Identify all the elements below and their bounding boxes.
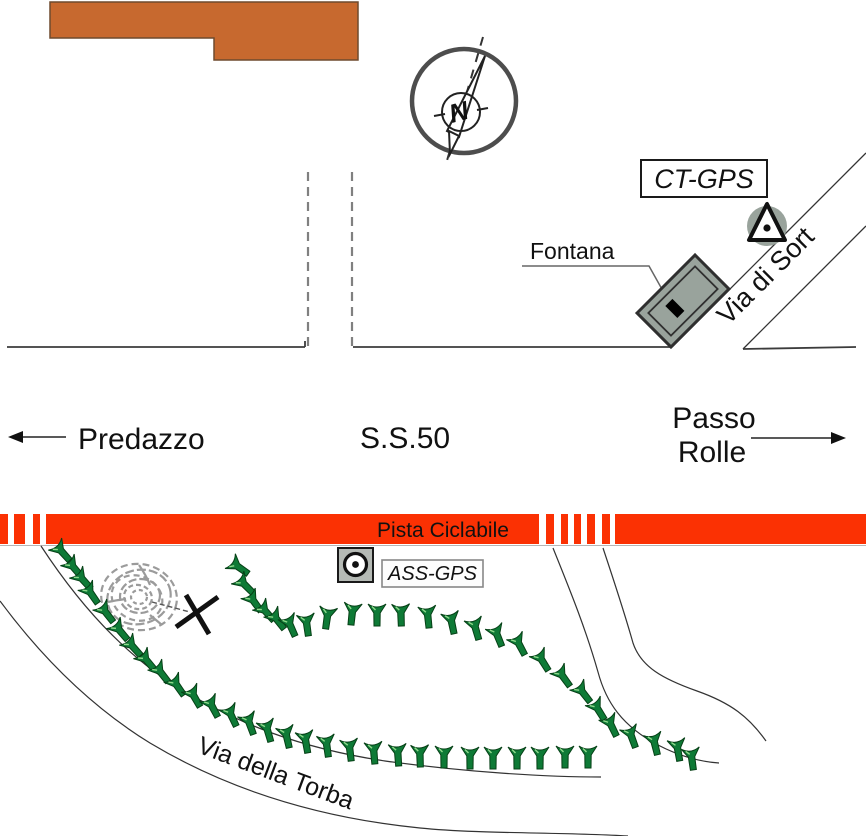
tree-marker <box>667 738 689 763</box>
sketch-map: N Via di Sort Fontana CT-GPS Preda <box>0 0 866 836</box>
tree-marker <box>643 731 666 757</box>
band-white-stripe <box>539 514 546 544</box>
band-white-stripe <box>8 514 14 544</box>
bike-path-label: Pista Ciclabile <box>377 519 509 542</box>
tree-marker <box>219 702 245 730</box>
west-direction: Predazzo <box>8 423 205 456</box>
tree-marker <box>619 724 643 751</box>
tree-marker <box>368 604 386 626</box>
mound-ring <box>119 577 162 614</box>
building-footprint <box>50 2 358 60</box>
tree-marker <box>317 606 338 630</box>
band-white-stripe <box>610 514 615 544</box>
main-road <box>7 341 856 349</box>
tree-marker <box>485 623 510 650</box>
tree-marker <box>225 554 253 581</box>
ass-gps-dot <box>352 561 359 568</box>
band-white-stripe <box>581 514 587 544</box>
tree-marker <box>506 631 532 659</box>
tree-marker <box>441 610 463 635</box>
mound-scribble <box>96 558 182 636</box>
east-town-label-line1: Passo <box>672 402 755 435</box>
ass-gps-label-box: ASS-GPS <box>382 560 483 587</box>
tree-marker <box>531 747 549 769</box>
road-number-label: S.S.50 <box>360 422 450 455</box>
tree-marker <box>316 734 337 758</box>
mound-ring <box>131 590 147 604</box>
tree-marker <box>484 747 502 769</box>
tree-marker <box>418 605 438 629</box>
ass-gps-marker <box>338 548 373 582</box>
side-road-left-edge <box>553 548 719 763</box>
trig-point-dot <box>763 224 770 231</box>
band-white-stripe <box>40 514 46 544</box>
bike-path-band: Pista Ciclabile <box>0 514 866 546</box>
tree-marker <box>296 613 317 637</box>
tree-marker <box>681 747 702 771</box>
tree-marker <box>461 747 479 769</box>
tree-marker <box>570 679 598 707</box>
side-road-right-edge <box>603 548 766 741</box>
main-road-right-segment <box>743 347 856 349</box>
tree-marker <box>78 580 105 608</box>
fountain-label: Fontana <box>530 238 615 264</box>
ct-gps-label-box: CT-GPS <box>641 160 767 197</box>
band-white-stripe <box>568 514 574 544</box>
tree-marker <box>550 663 577 691</box>
dashed-side-road <box>308 172 352 346</box>
ct-gps-label: CT-GPS <box>654 164 754 194</box>
tree-marker <box>435 746 453 768</box>
tree-marker <box>529 647 556 675</box>
band-white-stripe <box>595 514 602 544</box>
ass-gps-label: ASS-GPS <box>387 563 478 585</box>
mound-texture-line <box>139 565 150 585</box>
tree-marker <box>392 604 411 627</box>
band-white-stripe <box>554 514 561 544</box>
west-arrow-icon <box>8 431 23 443</box>
tree-marker <box>464 616 487 642</box>
tree-marker <box>579 746 597 768</box>
west-town-label: Predazzo <box>78 423 205 456</box>
vegetation-layer <box>48 538 702 771</box>
via-della-torba-label: Via della Torba <box>194 731 358 815</box>
side-road-right <box>553 548 766 763</box>
east-arrow-icon <box>831 432 846 444</box>
mound-texture-line <box>108 599 126 602</box>
tree-marker <box>364 741 384 764</box>
tree-marker <box>411 745 430 768</box>
tree-marker <box>181 683 208 711</box>
tree-marker <box>342 602 362 626</box>
tree-marker <box>508 747 526 769</box>
tree-marker <box>256 718 279 744</box>
fountain-leader-line <box>522 266 663 291</box>
cross-marker-tail <box>152 602 190 612</box>
band-white-stripe <box>25 514 33 544</box>
east-town-label-line2: Rolle <box>678 436 746 469</box>
compass-icon: N <box>412 37 516 164</box>
tree-marker <box>556 746 574 768</box>
east-direction: Passo Rolle <box>672 402 846 469</box>
tree-marker <box>276 724 298 749</box>
tree-marker <box>199 693 225 721</box>
ct-gps-marker <box>747 204 787 246</box>
tree-marker <box>340 738 361 762</box>
